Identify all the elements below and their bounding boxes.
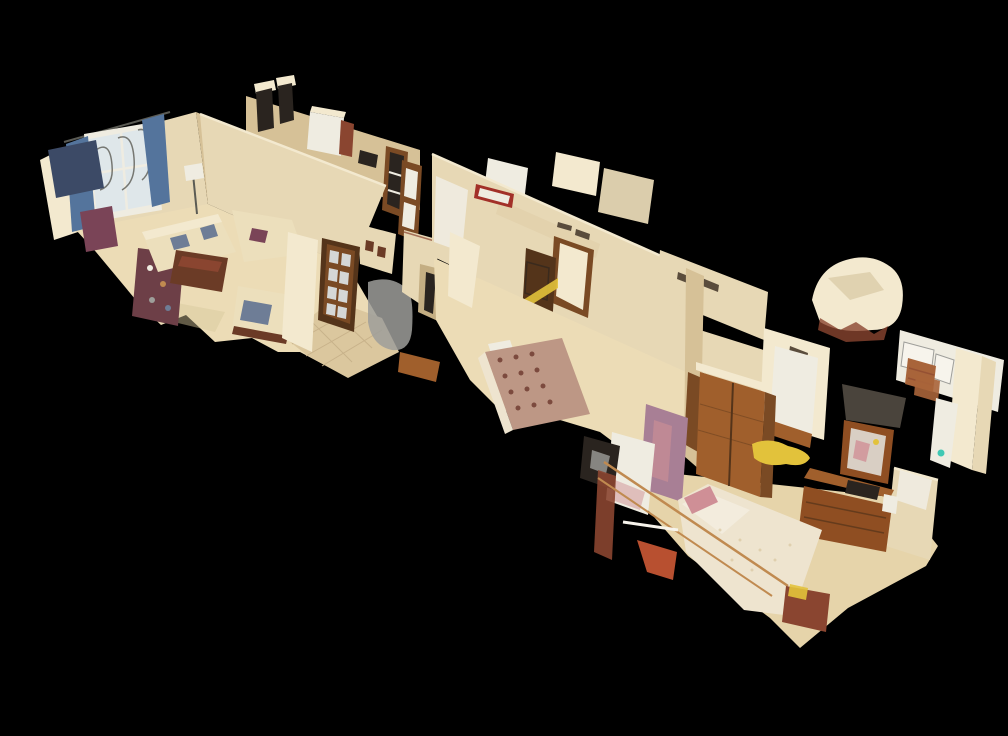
kitchen-island-wood-side (339, 120, 354, 157)
bright-doorway (770, 346, 818, 434)
shelf-ornament (165, 305, 171, 311)
hall-side-wall (282, 232, 318, 352)
toilet (933, 354, 954, 384)
bed1-pattern-dot (525, 387, 530, 392)
shelf-ornament (160, 281, 166, 287)
door-glass-pane (327, 286, 337, 300)
teal-toiletry (938, 450, 945, 457)
bed1-pattern-dot (548, 400, 553, 405)
maroon-armchair (80, 206, 118, 252)
shelf-ornament (149, 297, 155, 303)
bed1-pattern-dot (541, 384, 546, 389)
bed1-pattern-dot (509, 390, 514, 395)
door-glass-pane (341, 253, 351, 267)
bed2-texture-dot (751, 569, 754, 572)
shelf-ornament (147, 265, 153, 271)
viewer-canvas[interactable] (0, 0, 1008, 736)
hall-cabinet-panel-top (404, 168, 418, 200)
bed1-pattern-dot (519, 371, 524, 376)
chimney-pillar-2 (278, 83, 294, 124)
kitchen-island (307, 112, 344, 156)
mirror-yellow-reflection (873, 439, 879, 445)
door-glass-pane (338, 289, 348, 303)
bed2-texture-dot (774, 559, 777, 562)
picture-frame (377, 246, 386, 258)
dollhouse-model (0, 0, 1008, 736)
bed1-pattern-dot (532, 403, 537, 408)
bed1-pattern-dot (530, 352, 535, 357)
floor-lamp-shade (184, 163, 204, 181)
bed2-texture-dot (759, 549, 762, 552)
bed1-pattern-dot (503, 374, 508, 379)
door-glass-pane (328, 268, 338, 282)
door-glass-pane (326, 303, 336, 316)
dresser-white-lamp (882, 494, 898, 514)
bed1-pattern-dot (514, 355, 519, 360)
bed1-pattern-dot (535, 368, 540, 373)
bed1-pattern-dot (498, 358, 503, 363)
hall-cabinet-panel-bottom (402, 202, 416, 230)
bed1-pattern-dot (516, 406, 521, 411)
navy-armchair (48, 140, 104, 198)
bed2-texture-dot (789, 544, 792, 547)
bed2-texture-dot (731, 559, 734, 562)
door-glass-pane (329, 250, 339, 264)
door-glass-pane (339, 271, 349, 285)
bed2-texture-dot (739, 539, 742, 542)
picture-frame (365, 240, 374, 252)
bed2-texture-dot (719, 529, 722, 532)
chimney-pillar-1 (256, 88, 274, 132)
door-glass-pane (337, 306, 347, 319)
